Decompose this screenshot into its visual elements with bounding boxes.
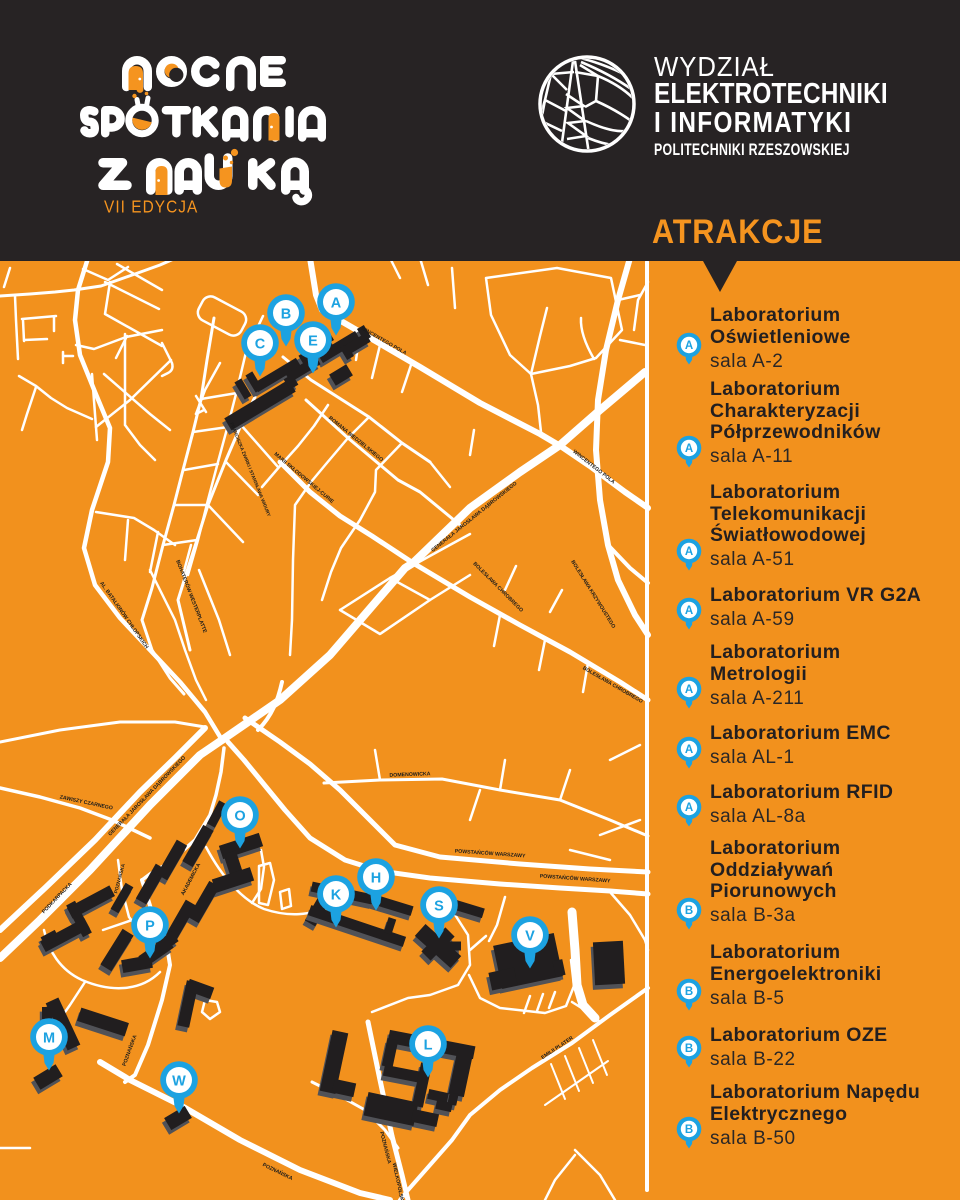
svg-text:POLITECHNIKI RZESZOWSKIEJ: POLITECHNIKI RZESZOWSKIEJ	[654, 141, 850, 159]
svg-text:A: A	[685, 684, 693, 696]
svg-text:B: B	[685, 1124, 693, 1136]
svg-text:A: A	[685, 546, 693, 558]
svg-text:M: M	[43, 1031, 55, 1047]
svg-text:ELEKTROTECHNIKI: ELEKTROTECHNIKI	[654, 77, 888, 109]
svg-text:A: A	[331, 296, 342, 312]
svg-text:K: K	[331, 888, 342, 904]
svg-text:P: P	[145, 919, 155, 935]
svg-text:A: A	[685, 802, 693, 814]
svg-text:A: A	[685, 744, 693, 756]
svg-text:H: H	[371, 871, 381, 887]
svg-text:A: A	[685, 340, 693, 352]
svg-text:I INFORMATYKI: I INFORMATYKI	[654, 106, 852, 138]
svg-text:V: V	[525, 929, 535, 945]
svg-text:ATRAKCJE: ATRAKCJE	[652, 213, 823, 251]
svg-text:A: A	[685, 443, 693, 455]
svg-text:A: A	[685, 605, 693, 617]
svg-text:L: L	[424, 1038, 433, 1054]
svg-text:B: B	[281, 307, 291, 323]
svg-text:O: O	[234, 809, 245, 825]
svg-text:B: B	[685, 905, 693, 917]
svg-text:B: B	[685, 1043, 693, 1055]
svg-text:B: B	[685, 986, 693, 998]
svg-text:VII EDYCJA: VII EDYCJA	[104, 198, 198, 217]
svg-text:C: C	[255, 337, 266, 353]
svg-text:S: S	[434, 899, 444, 915]
svg-text:W: W	[172, 1074, 186, 1090]
svg-text:E: E	[308, 334, 318, 350]
